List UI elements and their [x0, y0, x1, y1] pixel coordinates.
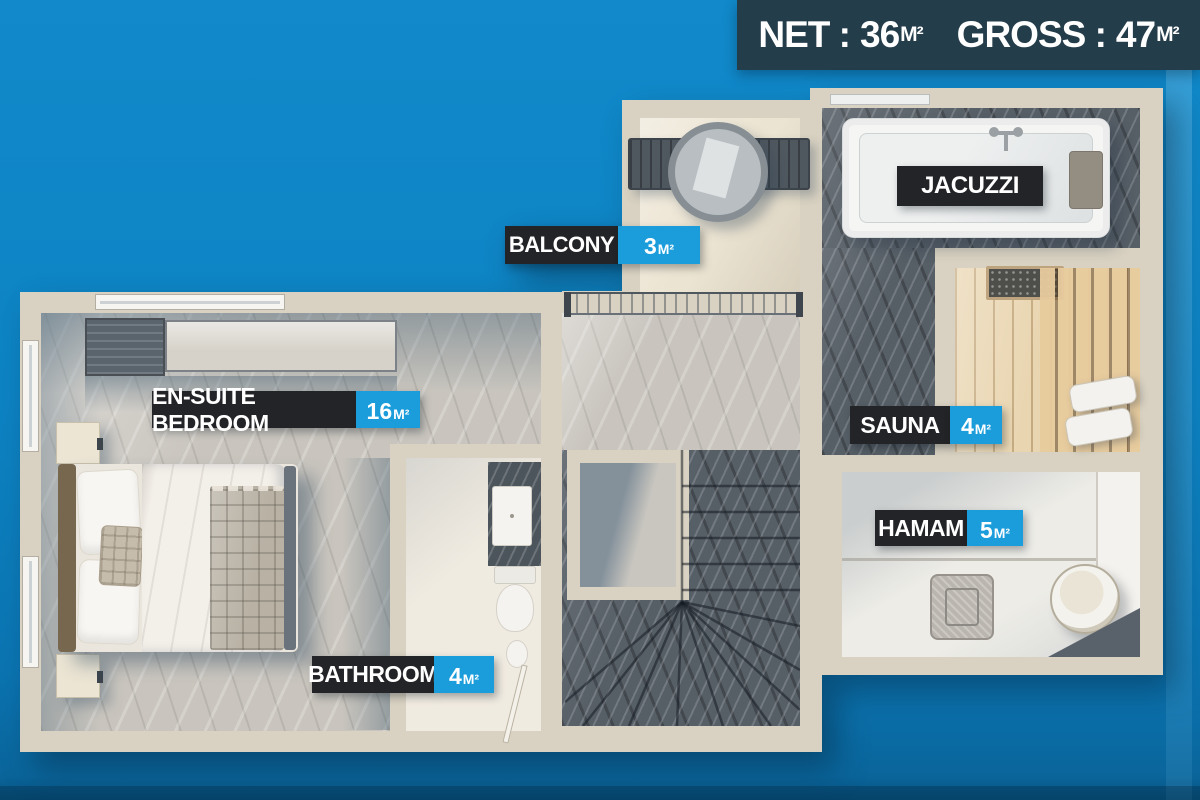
floor-plan: EN-SUITE BEDROOM 16M² BATHROOM 4M² BALCO… [0, 0, 1200, 800]
room-label-bathroom: BATHROOM 4M² [312, 656, 494, 693]
hall-floor [562, 313, 800, 450]
balustrade [565, 292, 802, 315]
room-name: HAMAM [875, 510, 967, 546]
window [22, 340, 39, 452]
background-bottom-band [0, 786, 1200, 800]
toilet [496, 584, 534, 632]
room-area: 3M² [618, 226, 700, 264]
hamam-bench-edge [842, 558, 1096, 561]
room-area: 4M² [950, 406, 1002, 444]
room-name: EN-SUITE BEDROOM [152, 391, 356, 428]
room-name-text: HAMAM [878, 515, 964, 542]
hamam-stone-top [945, 588, 979, 626]
dresser [165, 320, 397, 372]
room-label-sauna: SAUNA 4M² [850, 406, 1002, 444]
room-area: 5M² [967, 510, 1023, 546]
bed-headboard [58, 464, 76, 652]
plaid-throw [210, 486, 284, 650]
plaid-cushion [98, 525, 143, 587]
area-unit: M² [658, 241, 674, 257]
window [95, 294, 285, 310]
area-unit: M² [463, 671, 479, 687]
area-unit: M² [975, 421, 991, 437]
bed-footboard [284, 466, 296, 650]
room-name: JACUZZI [897, 166, 1043, 206]
room-area: 4M² [434, 656, 494, 693]
wardrobe [85, 318, 165, 376]
area-unit: M² [393, 406, 409, 422]
flush-control [506, 640, 528, 668]
window [830, 94, 930, 105]
wall [390, 446, 406, 752]
room-label-jacuzzi: JACUZZI [897, 166, 1043, 206]
room-name-text: EN-SUITE BEDROOM [152, 383, 356, 437]
room-name: BALCONY [505, 226, 618, 264]
round-table [668, 122, 768, 222]
area-value: 4 [961, 413, 974, 440]
area-value: 4 [449, 663, 462, 690]
room-name: SAUNA [850, 406, 950, 444]
area-value: 16 [367, 398, 393, 425]
area-value: 3 [644, 233, 657, 260]
room-name-text: JACUZZI [921, 172, 1019, 200]
toilet-tank [494, 566, 536, 584]
sink [492, 486, 532, 546]
bath-tray [1069, 151, 1103, 209]
nightstand [56, 654, 100, 698]
area-value: 5 [980, 517, 993, 544]
hamam-basin [1050, 564, 1120, 634]
room-name-text: SAUNA [860, 412, 939, 439]
nightstand-knob [97, 671, 103, 683]
wall [390, 444, 542, 458]
room-name: BATHROOM [312, 656, 434, 693]
nightstand-knob [97, 438, 103, 450]
window [22, 556, 39, 668]
room-area: 16M² [356, 391, 420, 428]
hamam-stone [930, 574, 994, 640]
room-label-hamam: HAMAM 5M² [875, 510, 1023, 546]
room-name-text: BATHROOM [308, 661, 438, 688]
room-label-bedroom: EN-SUITE BEDROOM 16M² [152, 391, 420, 428]
staircase [565, 450, 800, 726]
area-unit: M² [994, 525, 1010, 541]
room-label-balcony: BALCONY 3M² [505, 226, 700, 264]
sink-drain [510, 514, 514, 518]
faucet [1004, 131, 1008, 151]
floorplan-page: NET :36M² GROSS :47M² [0, 0, 1200, 800]
room-name-text: BALCONY [509, 232, 614, 258]
nightstand [56, 422, 100, 464]
bed [58, 464, 298, 652]
